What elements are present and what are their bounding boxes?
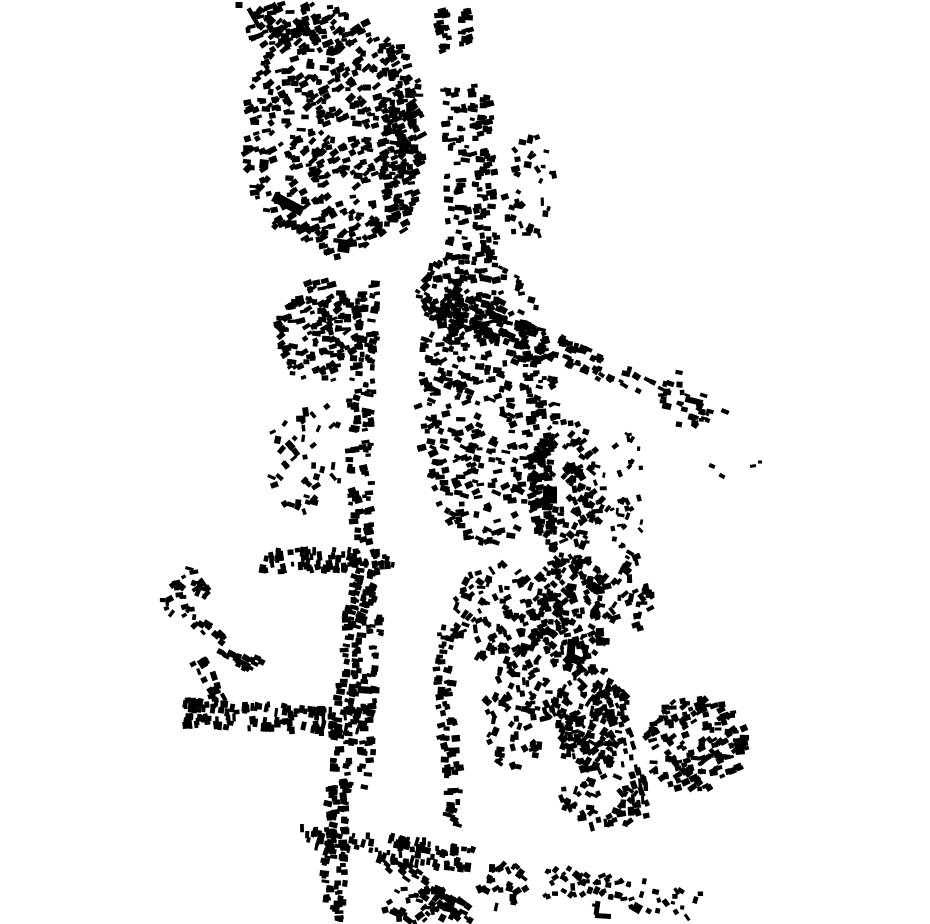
building-footprint-map (0, 0, 930, 924)
building-footprint-map-canvas (0, 0, 930, 924)
page: { "canvas": { "width": 930, "height": 92… (0, 0, 930, 924)
